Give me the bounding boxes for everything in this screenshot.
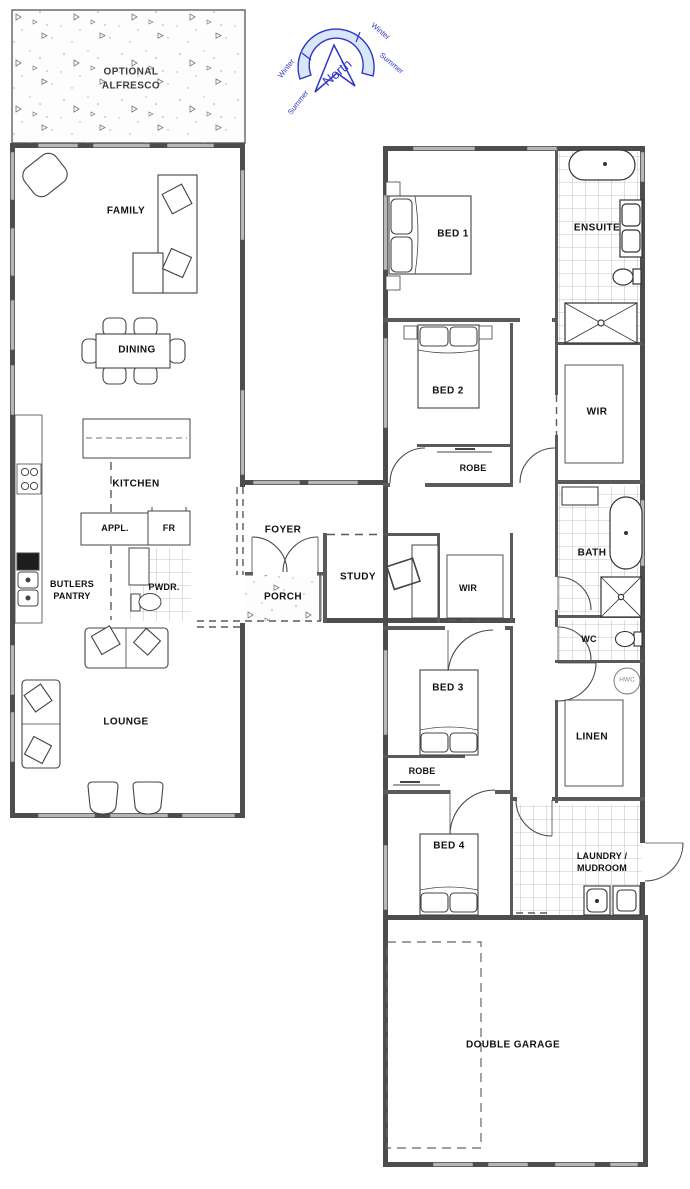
north-compass: North Winter Summer Winter Summer — [276, 21, 406, 117]
label-foyer: FOYER — [265, 523, 301, 537]
dashed-lines — [111, 395, 557, 913]
wc-toilet-icon — [634, 632, 642, 646]
study-furniture — [387, 545, 503, 618]
compass-winter-left: Winter — [276, 57, 297, 80]
ensuite-toilet-icon — [633, 269, 641, 284]
label-garage: DOUBLE GARAGE — [466, 1038, 560, 1052]
label-butlers-pantry: BUTLERS PANTRY — [50, 578, 94, 602]
bath-vanity-icon — [562, 487, 598, 505]
compass-winter-right: Winter — [369, 21, 392, 42]
label-hwc: HWC — [619, 677, 635, 686]
label-kitchen: KITCHEN — [112, 477, 159, 491]
label-appliances: APPL. — [101, 522, 129, 534]
bed2-door — [390, 448, 425, 483]
laundry-exterior-door — [645, 843, 683, 881]
label-porch: PORCH — [264, 590, 302, 604]
kitchen-island-icon — [83, 419, 190, 458]
powder-vanity-icon — [129, 548, 149, 585]
label-study: STUDY — [340, 570, 376, 584]
label-alfresco: OPTIONAL ALFRESCO — [102, 66, 160, 93]
wc-fixtures — [616, 632, 643, 647]
label-bed2: BED 2 — [432, 384, 463, 398]
label-lounge: LOUNGE — [103, 715, 148, 729]
butlers-cooktop-icon — [17, 553, 39, 570]
label-fridge: FR — [163, 522, 175, 534]
bed4-door — [450, 790, 495, 835]
compass-summer-right: Summer — [378, 51, 406, 76]
label-bed1: BED 1 — [437, 227, 468, 241]
family-armchair-icon — [19, 149, 71, 200]
label-linen: LINEN — [576, 730, 608, 744]
foyer-door-left — [252, 537, 287, 572]
label-bed2-robe: ROBE — [460, 462, 487, 474]
label-wc: WC — [581, 633, 596, 645]
wir-door — [520, 448, 555, 483]
label-bed3-robe: ROBE — [409, 765, 436, 777]
bed3-door — [448, 630, 493, 675]
cooktop-icon — [17, 464, 41, 494]
floor-plan: North Winter Summer Winter Summer OPTION… — [0, 0, 690, 1189]
study-desk-icon — [412, 545, 438, 618]
label-bed4: BED 4 — [433, 839, 464, 853]
label-wir: WIR — [587, 405, 608, 419]
ensuite-bathtub-icon — [569, 150, 635, 180]
label-bath: BATH — [578, 546, 607, 560]
linen-door — [558, 663, 596, 701]
compass-summer-left: Summer — [286, 88, 311, 116]
label-ensuite: ENSUITE — [574, 221, 620, 235]
label-powder: PWDR. — [149, 581, 180, 593]
label-laundry: LAUNDRY / MUDROOM — [577, 850, 627, 874]
label-dining: DINING — [118, 343, 155, 357]
floor-plan-drawing: North Winter Summer Winter Summer — [0, 0, 690, 1189]
label-bed3: BED 3 — [432, 681, 463, 695]
label-family: FAMILY — [107, 204, 145, 218]
foyer-door-right — [283, 537, 318, 572]
label-study-wir: WIR — [459, 582, 477, 594]
family-furniture — [19, 149, 197, 293]
lounge-chair-icon — [88, 782, 118, 814]
